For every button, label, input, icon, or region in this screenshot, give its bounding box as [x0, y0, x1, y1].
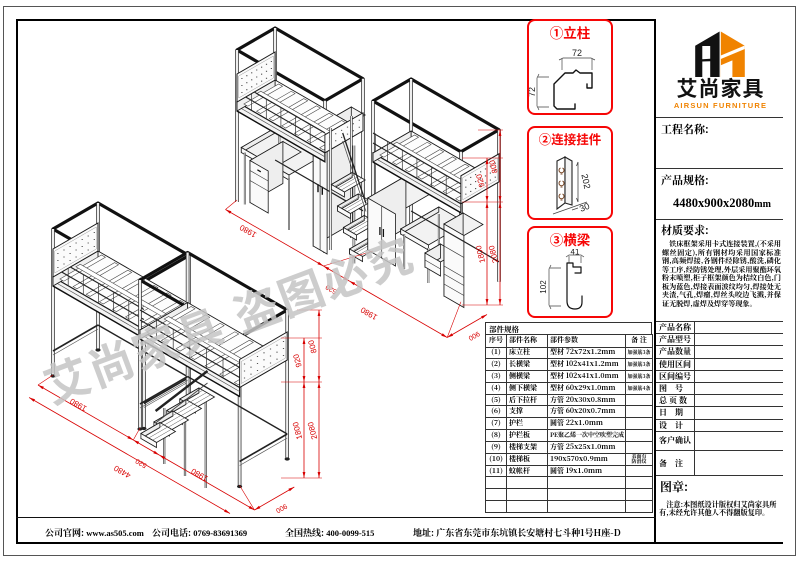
- svg-text:2080: 2080: [306, 420, 319, 440]
- svg-text:202: 202: [579, 173, 592, 190]
- svg-text:800: 800: [306, 339, 318, 355]
- svg-text:4480: 4480: [112, 463, 132, 480]
- svg-text:102: 102: [539, 280, 548, 294]
- svg-text:1980: 1980: [238, 222, 258, 239]
- svg-text:72: 72: [572, 48, 582, 58]
- svg-text:30: 30: [578, 201, 591, 214]
- svg-text:920: 920: [291, 353, 303, 369]
- svg-text:900: 900: [467, 329, 481, 341]
- svg-text:1980: 1980: [359, 305, 379, 322]
- svg-text:1800: 1800: [291, 420, 304, 440]
- svg-text:72: 72: [529, 87, 537, 97]
- svg-text:900: 900: [274, 502, 288, 514]
- svg-text:41: 41: [571, 249, 580, 257]
